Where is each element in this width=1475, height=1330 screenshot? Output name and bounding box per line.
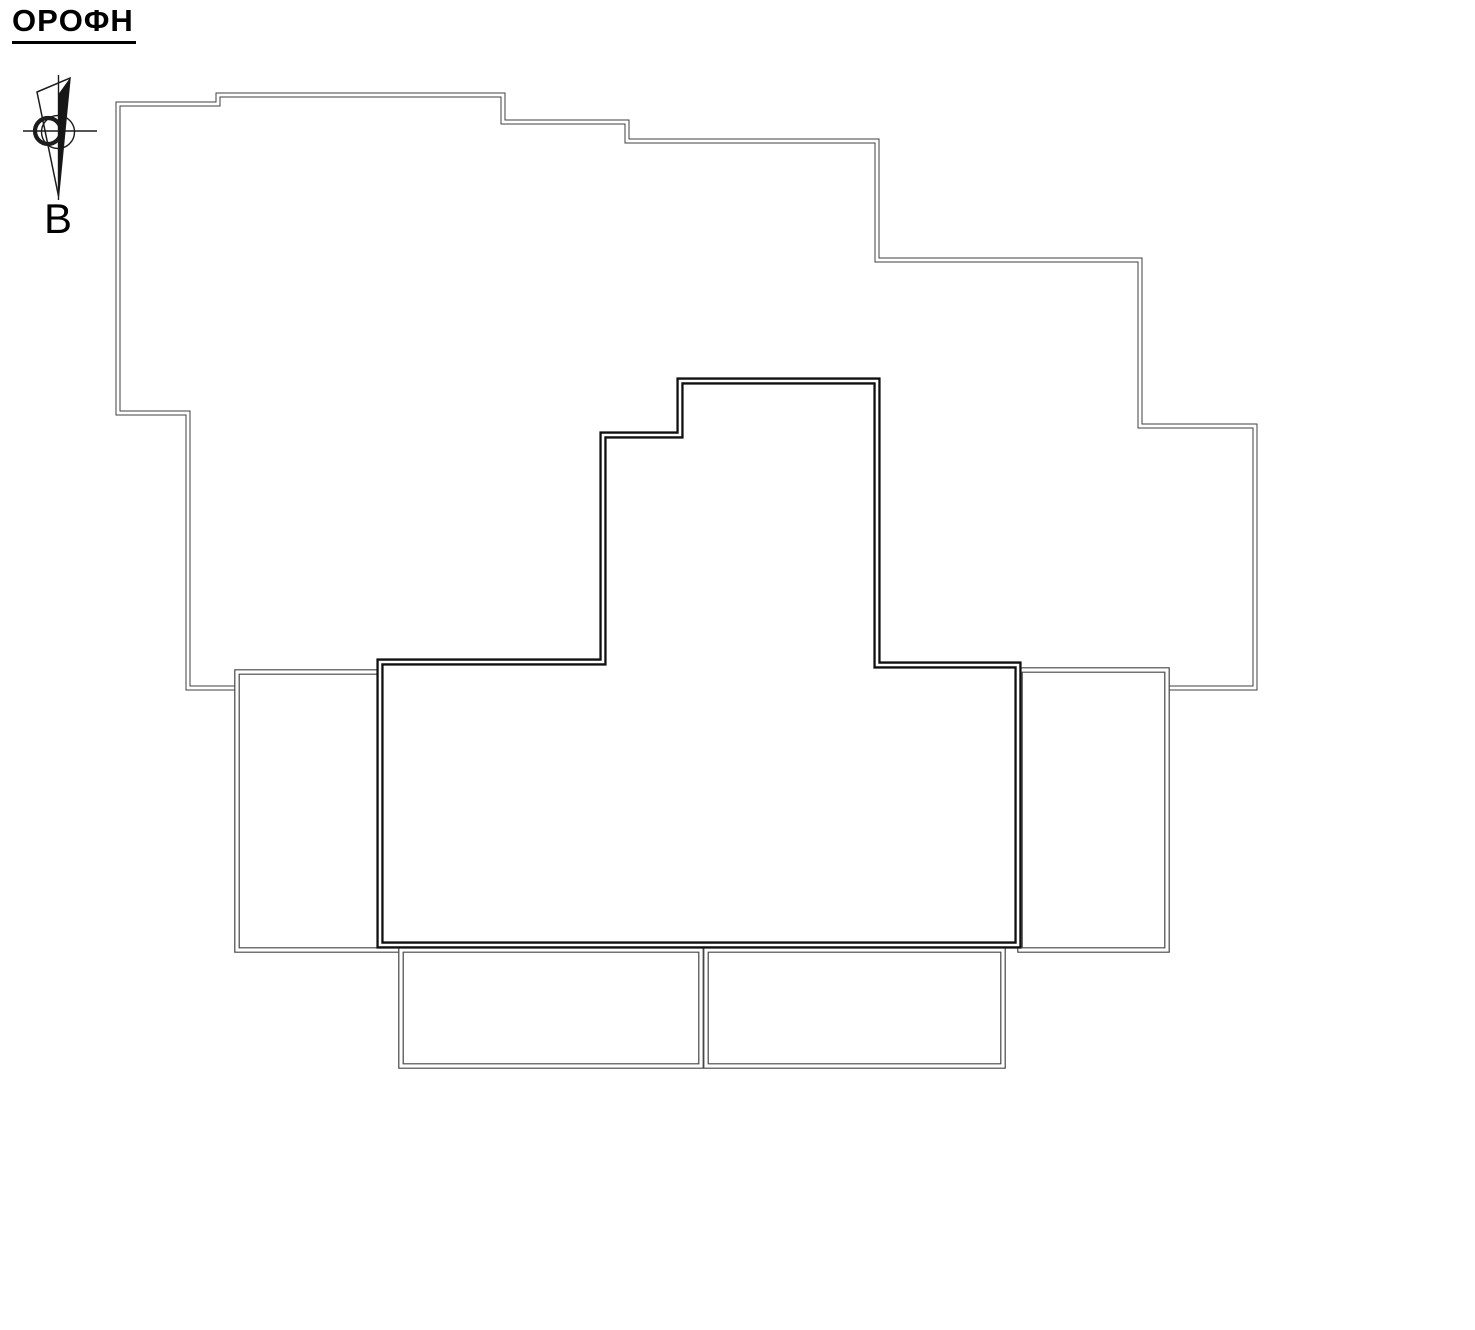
roof-plan-page: ΟΡΟΦΗ B: [0, 0, 1475, 1330]
bottom-right-terrace-outline: [706, 950, 1003, 1066]
left-wing-outline: [237, 672, 399, 950]
right-wing-outline: [1020, 670, 1167, 950]
floor-plan-drawing: [0, 0, 1475, 1330]
bottom-left-terrace-outline: [401, 950, 701, 1066]
central-block-tower-outline: [380, 381, 1018, 945]
